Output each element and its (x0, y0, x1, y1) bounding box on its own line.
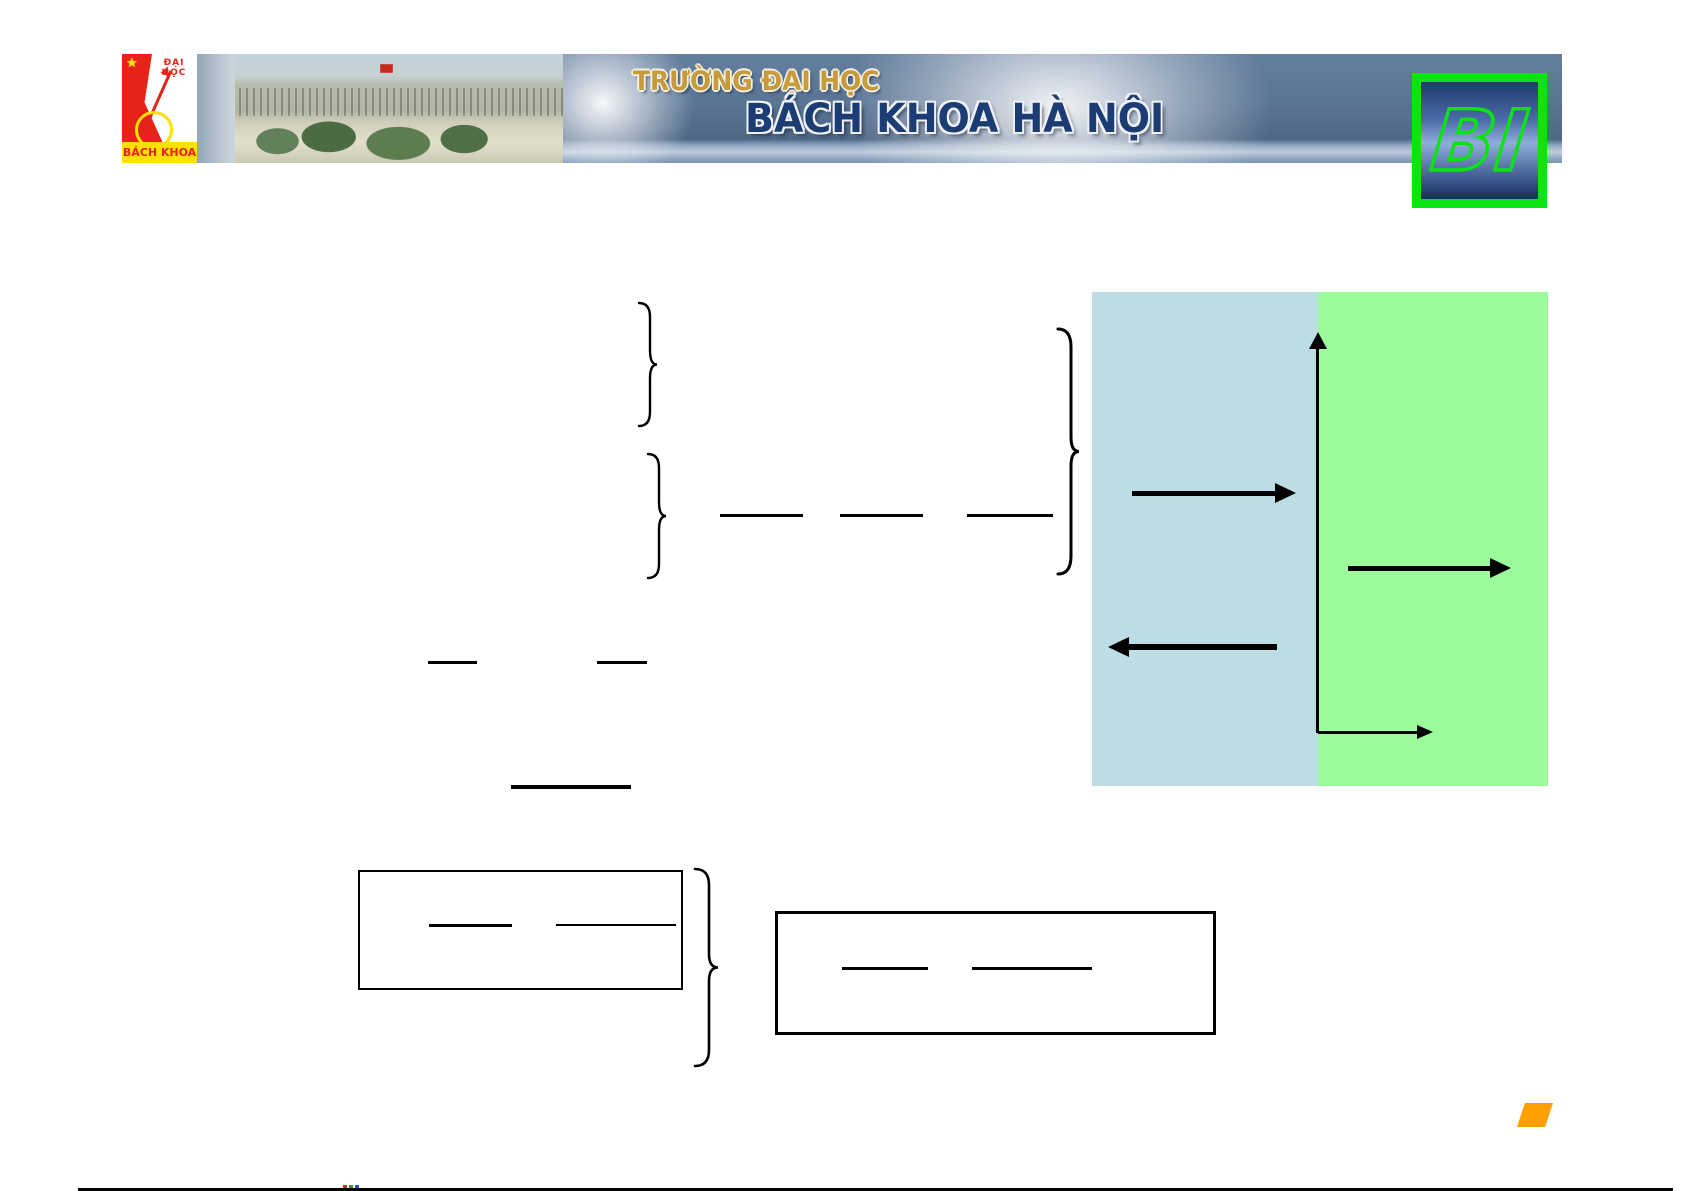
brace-upper-icon (636, 301, 660, 428)
underline-rule (511, 785, 631, 789)
star-icon: ★ (126, 56, 138, 71)
flag-icon (380, 64, 393, 73)
arrow-left-shaft (1128, 644, 1277, 650)
banner-title-line2: BÁCH KHOA HÀ NỘI (745, 96, 1164, 142)
formula-dash-1 (720, 514, 803, 517)
arrow-right-lower-shaft (1348, 566, 1493, 571)
orange-parallelogram (1517, 1103, 1553, 1127)
formula-box-2 (775, 911, 1216, 1035)
brace-large-icon (1054, 327, 1082, 576)
region-right-green (1318, 292, 1548, 786)
crest-top-label: ĐẠI HỌC (152, 58, 196, 78)
box1-dash-1 (429, 924, 512, 927)
university-crest: ★ ĐẠI HỌC BÁCH KHOA (122, 54, 197, 163)
arrow-left-head (1108, 637, 1129, 657)
axis-up-arrow-shaft (1316, 348, 1319, 733)
box1-dash-2 (556, 924, 676, 926)
short-line-1 (428, 661, 477, 664)
arrow-small-bottom-shaft (1318, 731, 1419, 734)
formula-dash-3 (967, 514, 1053, 517)
formula-dash-2 (840, 514, 923, 517)
arrow-right-upper-head (1275, 483, 1296, 503)
brace-box-icon (691, 867, 721, 1068)
arrow-right-upper-shaft (1132, 491, 1279, 496)
photo-left-edge (197, 54, 235, 163)
arrow-small-bottom-head (1417, 725, 1433, 739)
bi-logo-text: BI (1427, 99, 1531, 183)
arrow-right-lower-head (1490, 558, 1511, 578)
short-line-2 (597, 661, 647, 664)
banner-title-line1: TRƯỜNG ĐẠI HỌC (633, 66, 879, 97)
region-left-blue (1092, 292, 1318, 786)
box2-dash-2 (972, 967, 1092, 970)
brace-lower-icon (645, 452, 669, 580)
axis-up-arrow-head (1309, 332, 1327, 349)
box2-dash-1 (842, 967, 928, 970)
slide-canvas: ★ ĐẠI HỌC BÁCH KHOA TRƯỜNG ĐẠI HỌC BÁCH … (0, 0, 1685, 1191)
bi-logo: BI (1412, 73, 1547, 208)
crest-bottom-band: BÁCH KHOA (122, 142, 197, 163)
formula-box-1 (358, 870, 683, 990)
crest-bottom-label: BÁCH KHOA (123, 146, 196, 159)
